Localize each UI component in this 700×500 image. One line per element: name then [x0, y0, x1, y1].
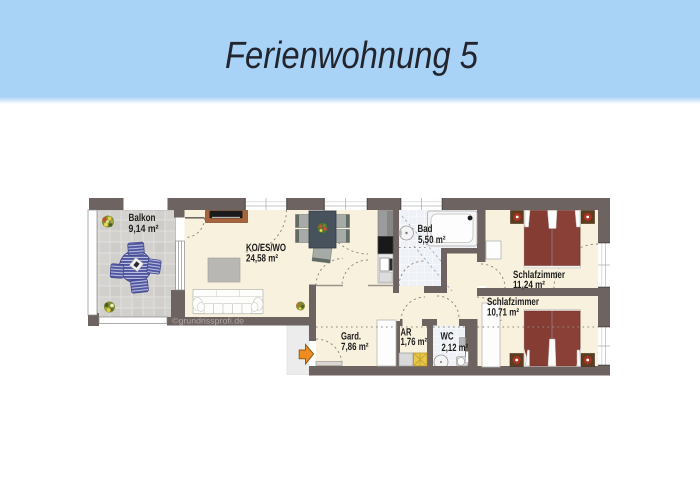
svg-text:11,24 m²: 11,24 m² — [513, 279, 545, 291]
svg-text:©grundrissprofi.de: ©grundrissprofi.de — [172, 317, 244, 326]
svg-text:10,71 m²: 10,71 m² — [487, 307, 519, 319]
svg-text:1,76 m²: 1,76 m² — [401, 336, 428, 348]
svg-text:7,86 m²: 7,86 m² — [341, 341, 369, 353]
svg-text:5,50 m²: 5,50 m² — [418, 234, 446, 246]
svg-text:24,58 m²: 24,58 m² — [246, 253, 278, 265]
svg-text:Ferienwohnung 5: Ferienwohnung 5 — [225, 35, 479, 77]
svg-text:WC: WC — [441, 331, 454, 343]
svg-text:9,14 m²: 9,14 m² — [129, 223, 159, 235]
svg-text:2,12 m²: 2,12 m² — [442, 342, 469, 354]
